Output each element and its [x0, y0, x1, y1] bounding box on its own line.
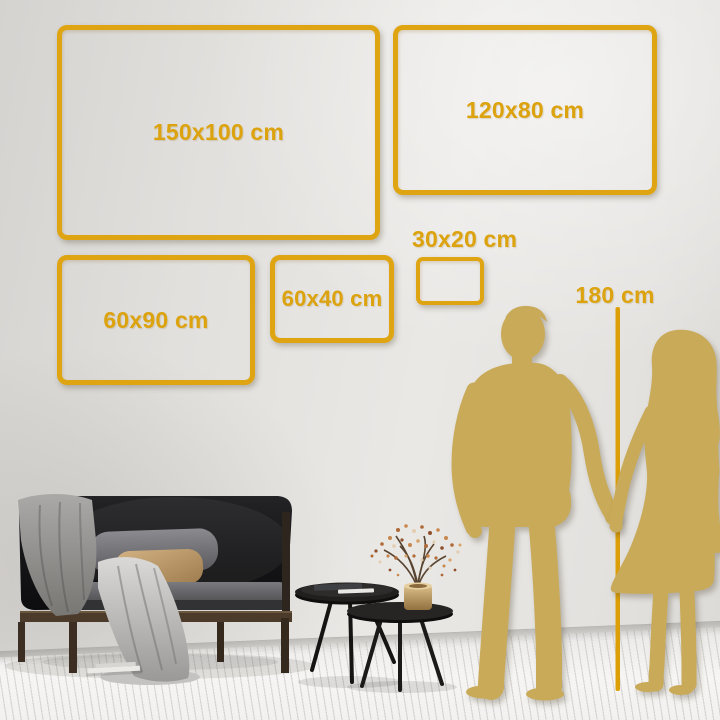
man-silhouette [459, 306, 621, 701]
size-label-30x20: 30x20 cm [412, 226, 517, 253]
sofa-arm-post-right [282, 512, 290, 612]
size-label-60x90: 60x90 cm [103, 307, 208, 334]
plant-stems [384, 536, 446, 585]
size-guide-poster: 150x100 cm 120x80 cm 60x90 cm 60x40 cm 3… [0, 0, 720, 720]
height-label: 180 cm [565, 282, 665, 309]
size-label-150x100: 150x100 cm [153, 119, 284, 146]
woman-silhouette [610, 330, 720, 695]
size-label-120x80: 120x80 cm [466, 97, 584, 124]
size-label-60x40: 60x40 cm [282, 286, 383, 312]
table-top-low [347, 602, 453, 620]
size-frame-120x80: 120x80 cm [393, 25, 657, 195]
size-frame-30x20 [416, 257, 484, 305]
size-frame-60x90: 60x90 cm [57, 255, 255, 385]
coffee-tables [295, 583, 457, 694]
size-frame-150x100: 150x100 cm [57, 25, 380, 240]
size-frame-60x40: 60x40 cm [270, 255, 394, 343]
